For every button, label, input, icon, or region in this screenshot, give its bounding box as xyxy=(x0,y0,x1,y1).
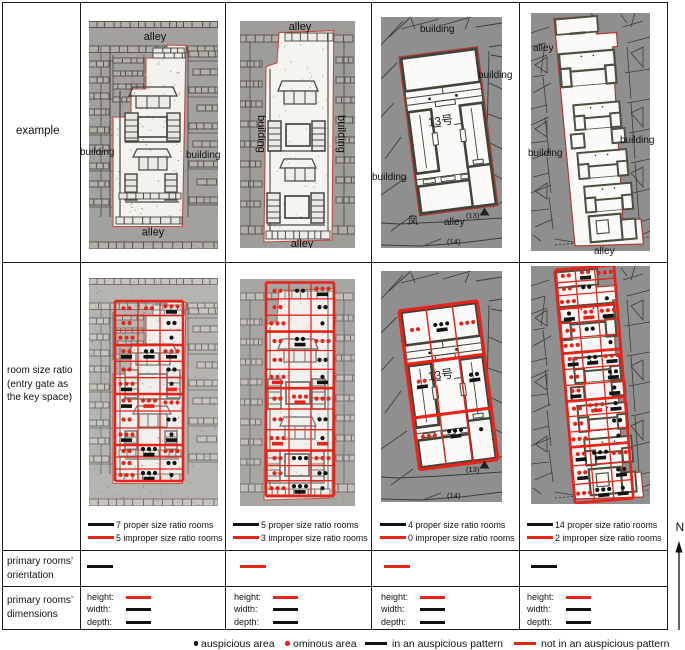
svg-text:alley: alley xyxy=(144,31,167,43)
svg-text:building: building xyxy=(335,115,347,153)
svg-text:alley: alley xyxy=(291,238,314,248)
svg-text:building: building xyxy=(255,115,267,153)
svg-text:alley: alley xyxy=(142,227,165,239)
svg-text:alley: alley xyxy=(289,21,312,33)
